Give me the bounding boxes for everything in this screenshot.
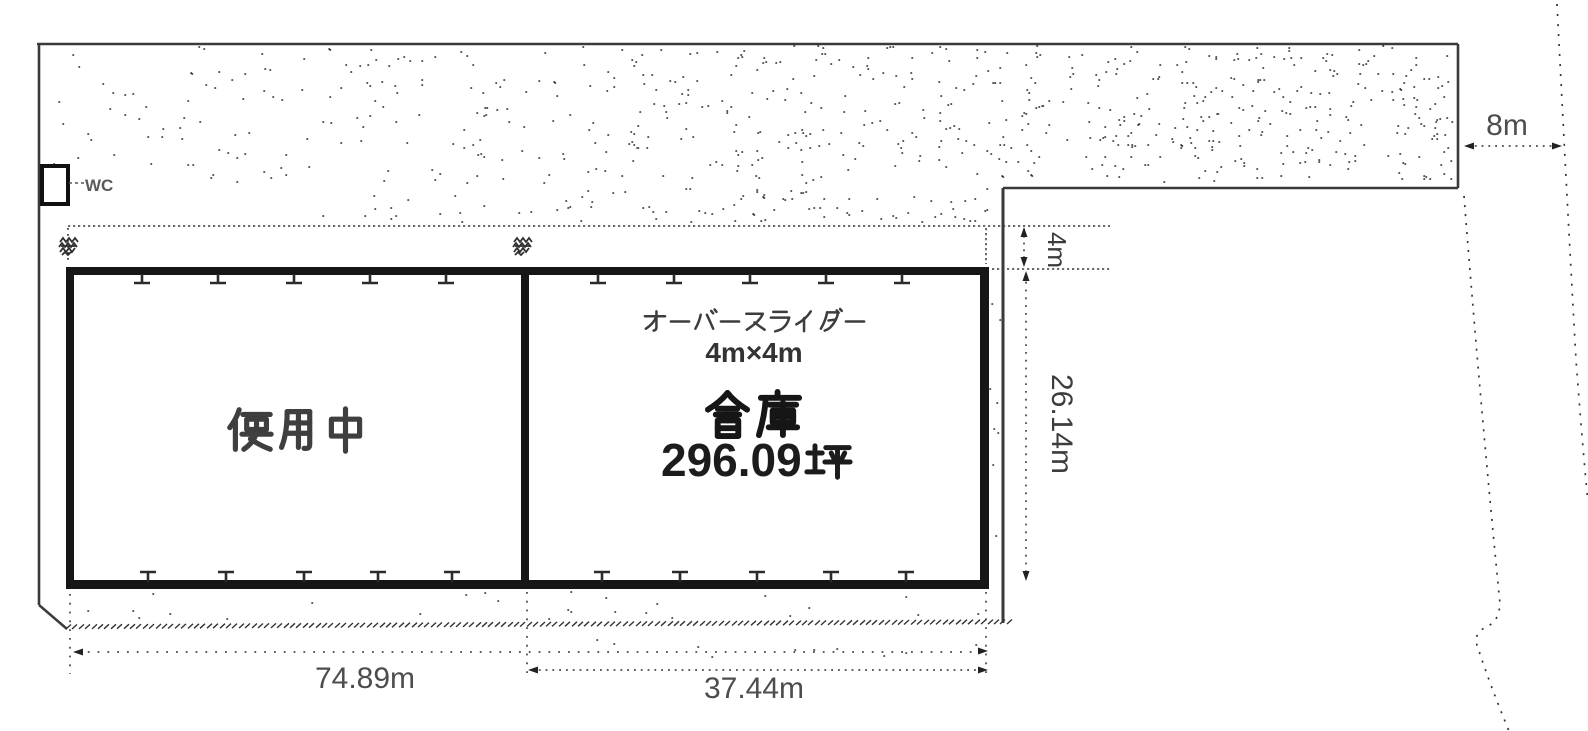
svg-text:74.89m: 74.89m [315, 662, 415, 695]
svg-text:8m: 8m [1486, 109, 1528, 142]
svg-text:WC: WC [85, 176, 113, 195]
svg-text:37.44m: 37.44m [704, 672, 804, 705]
svg-text:4m: 4m [1042, 232, 1072, 268]
svg-text:4m×4m: 4m×4m [705, 337, 802, 368]
svg-text:296.09: 296.09 [661, 434, 802, 486]
svg-text:26.14m: 26.14m [1045, 374, 1078, 474]
